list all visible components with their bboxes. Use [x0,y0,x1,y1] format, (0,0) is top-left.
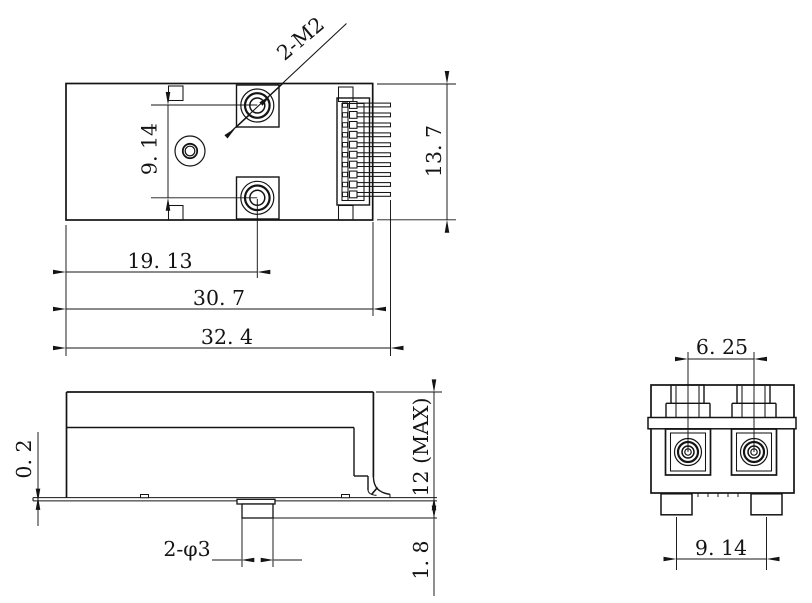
side-view: 0. 2 2-φ3 12 (MAX) 1. 8 [12,392,442,596]
side-view-mounting-post [237,499,275,518]
dim-label-thread-callout: 2-M2 [272,12,329,65]
dim-top-width: 13. 7 [377,84,456,220]
dim-label-end-port-spacing: 6. 25 [696,335,748,359]
side-view-body-outline [67,392,391,498]
dim-end-post-spacing: 9. 14 [677,517,767,570]
dim-top-horizontal-chain: 19. 13 30. 7 32. 4 [66,199,391,356]
connector-pin-slots [350,102,358,198]
dim-side-standoff: 0. 2 [12,432,38,526]
end-view-flange-strip [648,418,796,429]
top-view-connector [337,98,391,205]
dim-end-port-spacing: 6. 25 [688,335,754,452]
dim-label-end-post-spacing: 9. 14 [695,536,747,560]
dim-label-top-hole-spacing: 9. 14 [138,123,162,175]
dim-label-side-post-dia: 2-φ3 [163,537,210,561]
dim-label-top-overall-length: 32. 4 [201,325,253,349]
technical-drawing: 2-M2 9. 14 19. 13 30. 7 32. 4 13. 7 [0,0,812,603]
dim-side-post-protrusion: 1. 8 [273,498,437,596]
end-view-body-outline [651,385,794,493]
drawing-canvas: 2-M2 9. 14 19. 13 30. 7 32. 4 13. 7 [0,0,812,603]
dim-side-height-max: 12 (MAX) [376,392,442,497]
end-view-port-towers [666,385,776,418]
dim-label-top-hole-offset: 19. 13 [127,249,192,273]
top-view-nose-circles [175,136,205,166]
connector-pins [357,103,391,196]
end-view: 6. 25 9. 14 [648,335,796,570]
end-view-mounting-posts [661,494,782,515]
top-view: 2-M2 9. 14 19. 13 30. 7 32. 4 13. 7 [66,12,456,356]
dim-label-side-standoff: 0. 2 [12,439,36,478]
dim-label-top-body-length: 30. 7 [193,286,245,310]
dim-label-side-post-protrusion: 1. 8 [409,540,433,579]
end-view-bottom-ticks [698,494,738,498]
connector-rail-ticks [343,103,348,197]
top-view-body-outline [66,84,373,221]
end-view-port-blocks [666,429,777,475]
dim-label-top-width: 13. 7 [422,125,446,177]
dim-label-side-height-max: 12 (MAX) [409,398,433,497]
dim-side-post-dia: 2-φ3 [163,518,302,567]
